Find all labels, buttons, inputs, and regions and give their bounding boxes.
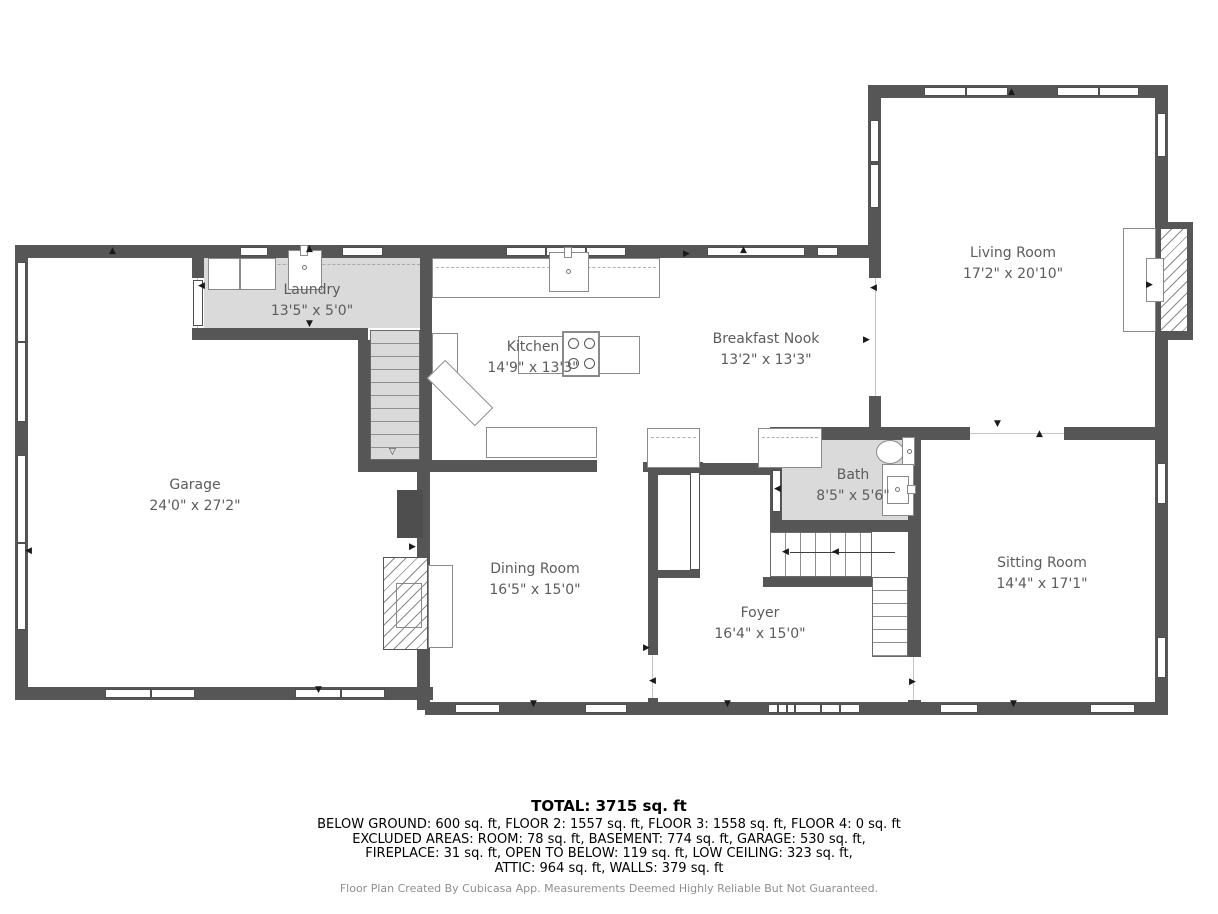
door-marker-icon: ◀ (870, 284, 877, 293)
total-area: TOTAL: 3715 sq. ft (0, 797, 1218, 815)
faucet-icon (907, 485, 916, 494)
door-marker-icon: ▼ (315, 686, 322, 695)
door-marker-icon: ▲ (109, 247, 116, 256)
washer-icon (208, 258, 240, 290)
room-name: Foyer (714, 603, 805, 624)
door-marker-icon: ◀ (774, 485, 781, 494)
fireplace-hearth (428, 565, 453, 648)
floor-plan: ▽ ◀ ◀ ▲ ▲ ▲ ▲ (0, 0, 1218, 914)
kitchen-counter (486, 427, 597, 458)
window (870, 164, 879, 208)
window (1157, 463, 1166, 504)
room-dims: 13'2" x 13'3" (713, 350, 820, 371)
window (17, 455, 26, 630)
room-dims: 14'9" x 13'3" (487, 358, 578, 379)
summary-line: FIREPLACE: 31 sq. ft, OPEN TO BELOW: 119… (0, 847, 1218, 862)
door-marker-icon: ◀ (25, 547, 32, 556)
room-name: Kitchen (487, 337, 578, 358)
window (924, 87, 1008, 96)
wall (420, 245, 432, 472)
window (1090, 704, 1135, 713)
wall (648, 698, 658, 715)
window (455, 704, 500, 713)
wall (881, 427, 970, 440)
room-name: Dining Room (489, 559, 580, 580)
drain-icon (566, 269, 571, 274)
drain-icon (302, 265, 307, 270)
room-dims: 8'5" x 5'6" (816, 486, 889, 507)
room-dims: 13'5" x 5'0" (271, 301, 353, 322)
window (870, 120, 879, 162)
door-marker-icon: ▲ (1036, 430, 1043, 439)
stair-arrow-icon: ◀ (782, 548, 789, 557)
wall (869, 245, 881, 278)
room-name: Breakfast Nook (713, 329, 820, 350)
window (817, 247, 838, 256)
door-marker-icon: ▲ (1008, 88, 1015, 97)
room-label-laundry: Laundry 13'5" x 5'0" (271, 280, 353, 322)
door-marker-icon: ▶ (1146, 281, 1153, 290)
fireplace-firebox (396, 583, 422, 628)
room-label-kitchen: Kitchen 14'9" x 13'3" (487, 337, 578, 379)
room-dims: 14'4" x 17'1" (996, 574, 1087, 595)
area-summary: TOTAL: 3715 sq. ft BELOW GROUND: 600 sq.… (0, 797, 1218, 876)
toilet-icon (876, 440, 904, 464)
room-label-garage: Garage 24'0" x 27'2" (149, 475, 240, 517)
door-marker-icon: ▶ (863, 336, 870, 345)
room-label-dining-room: Dining Room 16'5" x 15'0" (489, 559, 580, 601)
window (240, 247, 268, 256)
door-marker-icon: ▼ (994, 420, 1001, 429)
staircase-lower-flight (872, 577, 908, 657)
room-dims: 16'4" x 15'0" (714, 624, 805, 645)
cabinet (758, 428, 822, 468)
room-name: Sitting Room (996, 553, 1087, 574)
room-dims: 16'5" x 15'0" (489, 580, 580, 601)
door-marker-icon: ▼ (724, 700, 731, 709)
door-marker-icon: ◀ (649, 677, 656, 686)
window (1157, 637, 1166, 678)
room-dims: 17'2" x 20'10" (963, 264, 1063, 285)
cabinet (647, 428, 700, 468)
wall (908, 700, 921, 715)
door-marker-icon: ▶ (409, 543, 416, 552)
front-door (768, 704, 795, 713)
opening (875, 278, 876, 396)
wall (420, 460, 597, 472)
window (585, 704, 627, 713)
wall (192, 328, 368, 340)
room-label-bath: Bath 8'5" x 5'6" (816, 465, 889, 507)
faucet-icon (564, 247, 572, 258)
room-name: Garage (149, 475, 240, 496)
summary-line: BELOW GROUND: 600 sq. ft, FLOOR 2: 1557 … (0, 818, 1218, 833)
stair-down-arrow-icon: ▽ (389, 448, 396, 457)
drain-icon (895, 487, 900, 492)
wall (358, 340, 370, 472)
door-marker-icon: ▼ (530, 700, 537, 709)
wall (770, 520, 918, 532)
wall (648, 462, 658, 655)
room-label-breakfast-nook: Breakfast Nook 13'2" x 13'3" (713, 329, 820, 371)
room-name: Bath (816, 465, 889, 486)
sidelight-window (795, 704, 860, 713)
credit-line: Floor Plan Created By Cubicasa App. Meas… (0, 882, 1218, 895)
window (17, 262, 26, 422)
kitchen-counter (432, 258, 660, 298)
room-label-living-room: Living Room 17'2" x 20'10" (963, 243, 1063, 285)
door-marker-icon: ▼ (1010, 700, 1017, 709)
staircase-basement (370, 330, 420, 460)
window (342, 247, 383, 256)
stair-arrow-icon: ◀ (832, 548, 839, 557)
room-name: Living Room (963, 243, 1063, 264)
door-marker-icon: ▲ (306, 245, 313, 254)
closet-door (690, 472, 700, 570)
wall (1064, 427, 1155, 440)
wall (192, 245, 204, 278)
kitchen-counter-corner (427, 360, 493, 426)
toilet-tank (902, 437, 915, 466)
window (940, 704, 978, 713)
closet-wall (652, 570, 700, 578)
window (295, 689, 385, 698)
stair-wall (763, 577, 872, 587)
kitchen-sink-icon (549, 252, 589, 292)
door-marker-icon: ▲ (740, 246, 747, 255)
fireplace-icon (1160, 228, 1188, 332)
room-label-sitting-room: Sitting Room 14'4" x 17'1" (996, 553, 1087, 595)
room-name: Laundry (271, 280, 353, 301)
opening (970, 433, 1064, 434)
wall (869, 396, 881, 440)
stair-direction-line (790, 552, 895, 553)
door-marker-icon: ▶ (643, 644, 650, 653)
door-marker-icon: ▶ (909, 678, 916, 687)
room-label-foyer: Foyer 16'4" x 15'0" (714, 603, 805, 645)
window (1157, 113, 1166, 157)
window (707, 247, 805, 256)
door-marker-icon: ◀ (198, 282, 205, 291)
summary-line: ATTIC: 964 sq. ft, WALLS: 379 sq. ft (0, 862, 1218, 877)
door-marker-icon: ▶ (683, 250, 690, 259)
window (1057, 87, 1139, 96)
chimney-chase (397, 490, 423, 538)
window (105, 689, 195, 698)
summary-line: EXCLUDED AREAS: ROOM: 78 sq. ft, BASEMEN… (0, 833, 1218, 848)
room-dims: 24'0" x 27'2" (149, 496, 240, 517)
